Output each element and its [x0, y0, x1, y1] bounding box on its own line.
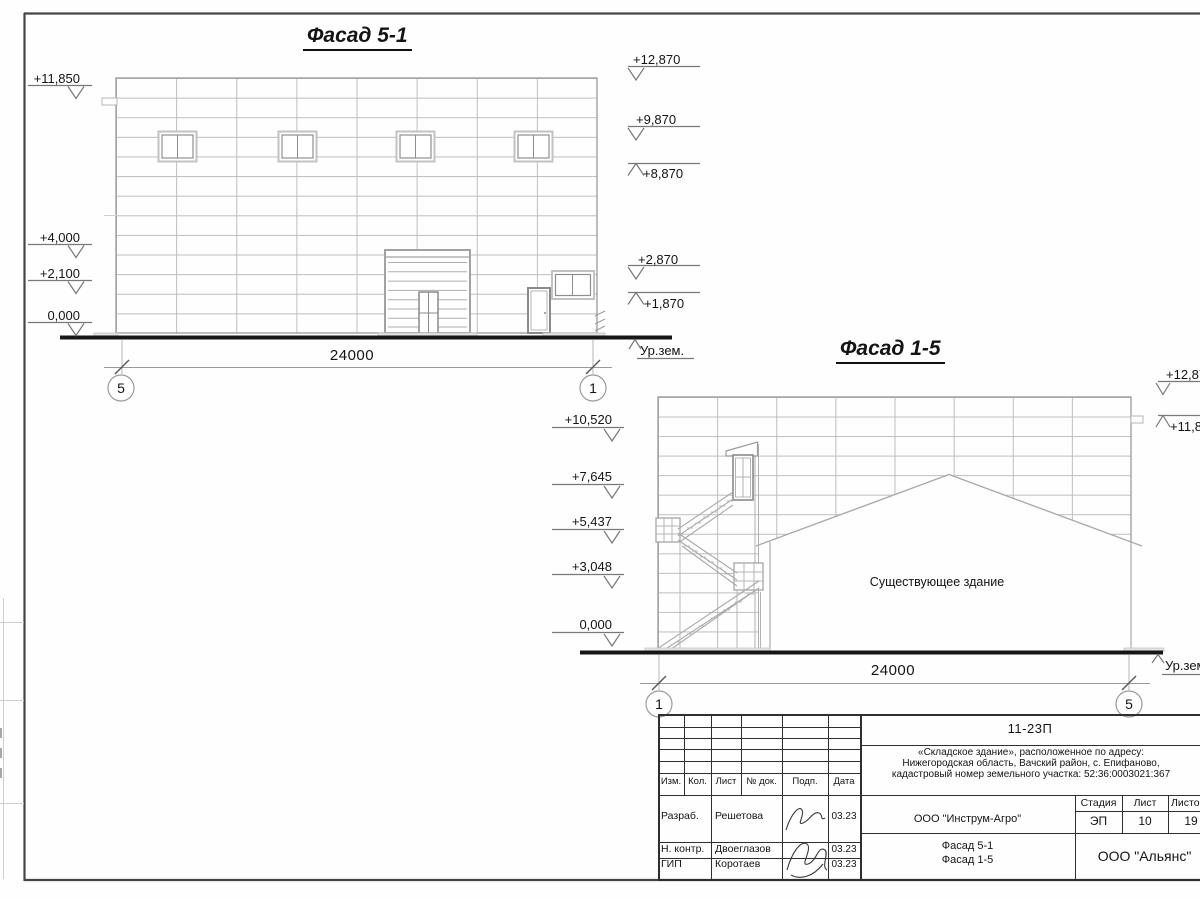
col-header-izm: Изм. — [658, 777, 684, 787]
col-header-kol: Кол. — [684, 777, 711, 787]
facade-1-5-building — [580, 397, 1164, 653]
title-block: Изм. Кол. Лист № док. Подп. Дата Разраб.… — [658, 714, 1200, 881]
stair-landing — [734, 563, 763, 590]
project-description-line: «Складское здание», расположенное по адр… — [862, 748, 1200, 759]
existing-building-label: Существующее здание — [847, 575, 1027, 589]
elevation-label: +8,870 — [643, 166, 683, 181]
staff-date: 03.23 — [828, 812, 860, 823]
elevation-label: +4,000 — [20, 230, 80, 245]
sheet-content-line: Фасад 1-5 — [860, 855, 1075, 867]
facade-5-1-building — [60, 78, 672, 338]
elevation-label: +9,870 — [636, 112, 676, 127]
left-margin-stamp — [0, 598, 24, 879]
axis-number: 5 — [108, 375, 134, 401]
axis-number: 1 — [580, 375, 606, 401]
staff-role: Н. контр. — [661, 844, 704, 855]
staff-name: Коротаев — [715, 859, 760, 870]
sheet-value: 10 — [1122, 815, 1168, 828]
sheets-value: 19 — [1168, 815, 1200, 828]
personnel-door — [528, 288, 550, 333]
small-window — [552, 271, 594, 299]
dimension-label: 24000 — [312, 347, 392, 364]
sectional-gate — [385, 250, 470, 333]
stair-landing — [656, 518, 680, 542]
staff-date: 03.23 — [828, 860, 860, 871]
elevation-label: +5,437 — [552, 514, 612, 529]
sheets-header: Листов — [1171, 798, 1200, 809]
col-header-data: Дата — [828, 777, 860, 787]
company-name: ООО "Альянс" — [1075, 849, 1200, 864]
document-number: 11-23П — [860, 722, 1200, 736]
staff-date: 03.23 — [828, 845, 860, 856]
sheet-header: Лист — [1122, 798, 1168, 809]
facade-1-5-title: Фасад 1-5 — [836, 337, 945, 364]
elevation-label: +11,850 — [20, 71, 80, 86]
elevation-label: +3,048 — [552, 559, 612, 574]
client-name: ООО "Инструм-Агро" — [860, 814, 1075, 826]
project-description-line: кадастровый номер земельного участка: 52… — [862, 770, 1200, 781]
elevation-label: +1,870 — [644, 296, 684, 311]
elevation-label: +12,870 — [633, 52, 680, 67]
project-description-line: Нижегородская область, Вачский район, с.… — [862, 759, 1200, 770]
elevation-label: +2,100 — [20, 266, 80, 281]
col-header-ndok: № док. — [741, 777, 782, 787]
staff-role: ГИП — [661, 859, 682, 870]
stage-value: ЭП — [1075, 815, 1122, 828]
sheet-content-line: Фасад 5-1 — [860, 841, 1075, 853]
dimension-label: 24000 — [853, 662, 933, 679]
elevation-label: +10,520 — [552, 412, 612, 427]
elevation-label: +7,645 — [552, 469, 612, 484]
elevation-label: +11,850 — [1170, 419, 1200, 434]
stage-header: Стадия — [1075, 798, 1122, 809]
elevation-label: 0,000 — [552, 617, 612, 632]
col-header-list: Лист — [711, 777, 741, 787]
ground-level-label: Ур.зем. — [640, 343, 684, 358]
staff-name: Решетова — [715, 811, 763, 822]
elevation-label: +12,870 — [1166, 367, 1200, 382]
ground-level-label: Ур.зем. — [1165, 658, 1200, 673]
staff-name: Двоеглазов — [715, 844, 771, 855]
elevation-label: 0,000 — [20, 308, 80, 323]
drawing-sheet: { "drawing": { "f51": { "title": "Фасад … — [0, 0, 1200, 900]
facade-5-1-title: Фасад 5-1 — [303, 24, 412, 51]
staff-role: Разраб. — [661, 811, 699, 822]
elevation-label: +2,870 — [638, 252, 678, 267]
col-header-podp: Подп. — [782, 777, 828, 787]
